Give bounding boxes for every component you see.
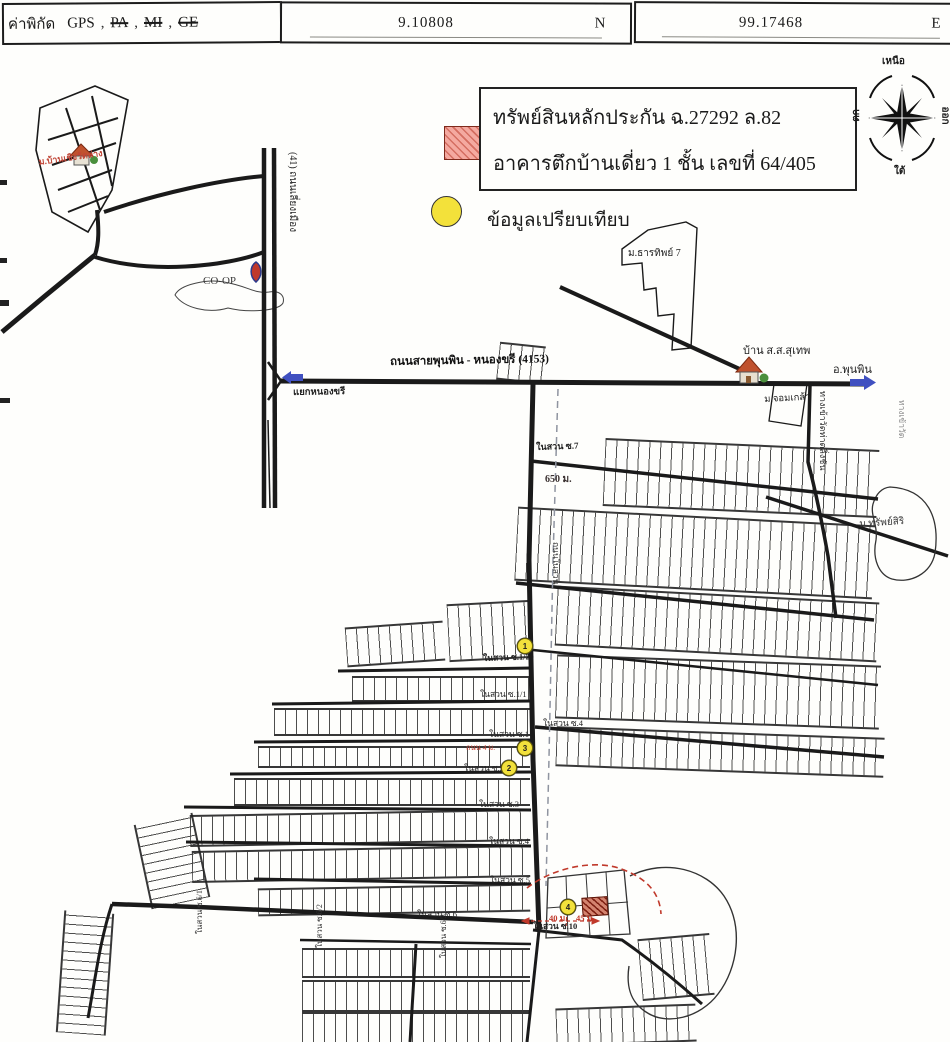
longitude-value: 99.17468 — [636, 14, 906, 32]
compass-south-label: ใต้ — [894, 164, 905, 179]
legend-line1: ทรัพย์สินหลักประกัน ฉ.27292 ล.82 — [493, 101, 855, 133]
longitude-hemisphere: E — [906, 15, 950, 32]
comparison-marker-3: 3 — [517, 740, 533, 756]
compass-north-label: เหนือ — [882, 54, 905, 69]
comma: , — [134, 15, 138, 32]
latitude-value: 9.10808 — [282, 14, 570, 32]
scan-underline — [662, 36, 939, 38]
compass-graphic — [856, 56, 948, 174]
scan-underline — [310, 36, 602, 38]
comparison-legend-circle — [431, 196, 462, 227]
gps-label: GPS — [67, 15, 95, 32]
comparison-legend-label: ข้อมูลเปรียบเทียบ — [487, 205, 630, 235]
comparison-marker-4: 4 — [560, 899, 576, 915]
comma: , — [168, 14, 172, 31]
longitude-cell: 99.17468 E — [634, 1, 950, 45]
comparison-marker-2: 2 — [501, 760, 517, 776]
coord-label: ค่าพิกัด — [8, 12, 55, 36]
datum-ge-struck: GE — [178, 14, 198, 31]
datum-pa-struck: PA — [110, 15, 128, 32]
map-document-page: { "header": { "coord_label": "ค่าพิกัด",… — [0, 0, 950, 1042]
coordinate-header: ค่าพิกัด GPS , PA , MI , GE 9.10808 N 99… — [0, 0, 950, 46]
latitude-cell: 9.10808 N — [280, 1, 632, 44]
compass-rose: เหนือ ใต้ ออก ตก — [856, 56, 948, 179]
compass-east-label: ออก — [938, 106, 950, 124]
datum-mi-struck: MI — [144, 14, 162, 31]
legend-line2: อาคารตึกบ้านเดี่ยว 1 ชั้น เลขที่ 64/405 — [493, 147, 855, 179]
coordinate-label-cell: ค่าพิกัด GPS , PA , MI , GE — [2, 1, 282, 45]
legend-box: ทรัพย์สินหลักประกัน ฉ.27292 ล.82 อาคารตึ… — [479, 87, 857, 191]
comma: , — [101, 15, 105, 32]
latitude-hemisphere: N — [570, 15, 630, 32]
compass-west-label: ตก — [849, 109, 864, 122]
comparison-marker-1: 1 — [517, 638, 533, 654]
